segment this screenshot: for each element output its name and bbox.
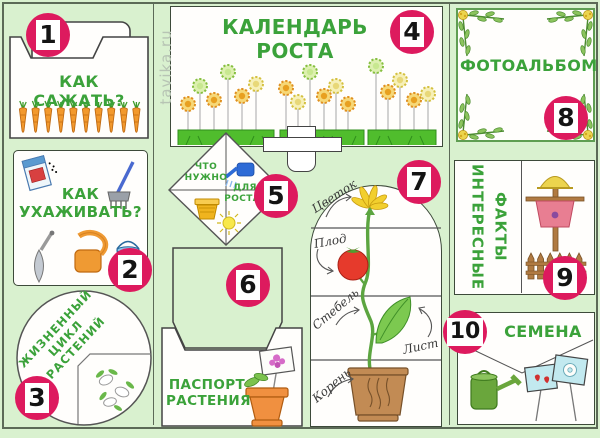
fun-facts-title: ИНТЕРЕСНЫЕ ФАКТЫ — [458, 166, 520, 288]
section-9-badge: 9 — [543, 256, 587, 300]
growth-calendar-title: КАЛЕНДАРЬ РОСТА — [195, 15, 395, 63]
section-10-badge: 10 — [443, 310, 487, 354]
seeds-title: СЕМЕНА — [497, 322, 589, 341]
needs-text-top: ЧТО НУЖНО — [183, 162, 229, 184]
section-3-badge: 3 — [15, 376, 59, 420]
facts-divider — [521, 161, 522, 293]
watering-can-icon — [75, 233, 105, 272]
sun-icon — [217, 211, 241, 235]
badge-9-number: 9 — [553, 263, 576, 293]
lapbook-poster: tavika.ru КАК САЖАТЬ? — [0, 0, 600, 438]
section-1-badge: 1 — [26, 13, 70, 57]
section-8-badge: 8 — [544, 96, 588, 140]
seed-marker-icons — [525, 355, 588, 421]
how-to-care-title: КАК УХАЖИВАТЬ? — [18, 185, 143, 221]
section-4-badge: 4 — [390, 10, 434, 54]
passport-title: ПАСПОРТ РАСТЕНИЯ — [166, 377, 248, 409]
photo-album-title: ФОТОАЛЬБОМ — [460, 56, 591, 75]
fun-facts-word-2: ФАКТЫ — [492, 192, 510, 262]
section-5-badge: 5 — [254, 174, 298, 218]
root-pot-part — [348, 368, 408, 421]
green-watering-can-icon — [471, 371, 520, 409]
badge-8-number: 8 — [554, 103, 577, 133]
fruit-part — [338, 247, 368, 280]
badge-6-number: 6 — [236, 270, 259, 300]
badge-1-number: 1 — [36, 20, 59, 50]
badge-10-number: 10 — [447, 318, 484, 345]
watermark: tavika.ru — [157, 19, 175, 115]
badge-5-number: 5 — [264, 181, 287, 211]
leaf-part — [376, 297, 411, 343]
trowel-icon — [35, 231, 55, 282]
section-2-badge: 2 — [108, 248, 152, 292]
fold-line-right — [449, 4, 450, 425]
section-6-badge: 6 — [226, 263, 270, 307]
badge-3-number: 3 — [25, 383, 48, 413]
badge-2-number: 2 — [118, 255, 141, 285]
section-7-badge: 7 — [397, 160, 441, 204]
how-to-plant-title: КАК САЖАТЬ? — [16, 72, 142, 110]
badge-4-number: 4 — [400, 17, 423, 47]
badge-7-number: 7 — [407, 167, 430, 197]
fun-facts-word-1: ИНТЕРЕСНЫЕ — [469, 164, 487, 290]
